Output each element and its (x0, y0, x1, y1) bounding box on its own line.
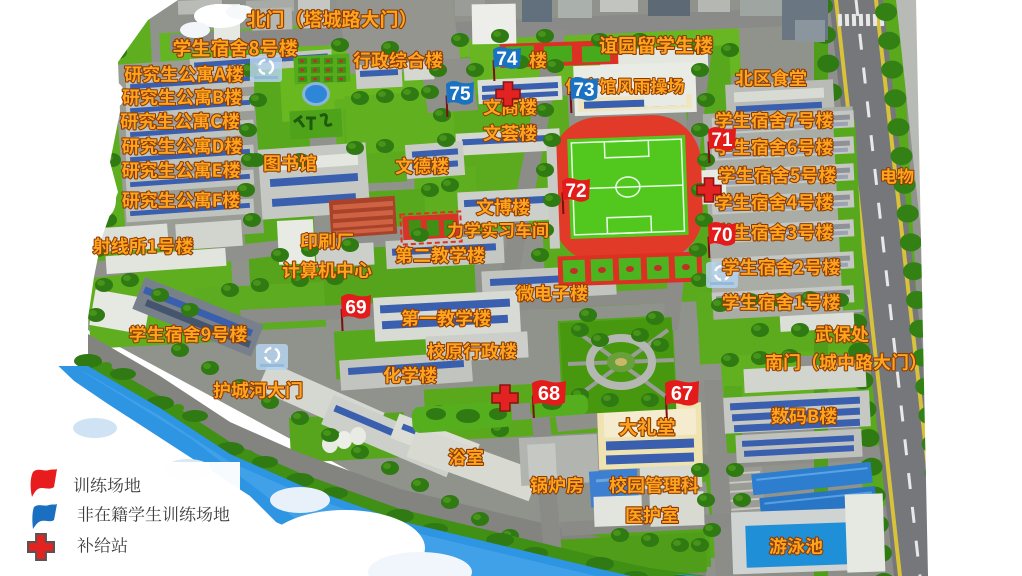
svg-text:67: 67 (671, 383, 693, 405)
svg-text:75: 75 (449, 84, 471, 105)
svg-text:73: 73 (573, 80, 594, 101)
svg-text:69: 69 (345, 297, 366, 318)
svg-text:68: 68 (538, 383, 560, 405)
svg-text:74: 74 (496, 49, 518, 70)
svg-text:72: 72 (565, 181, 586, 202)
svg-text:71: 71 (711, 130, 733, 151)
svg-text:70: 70 (711, 225, 732, 246)
